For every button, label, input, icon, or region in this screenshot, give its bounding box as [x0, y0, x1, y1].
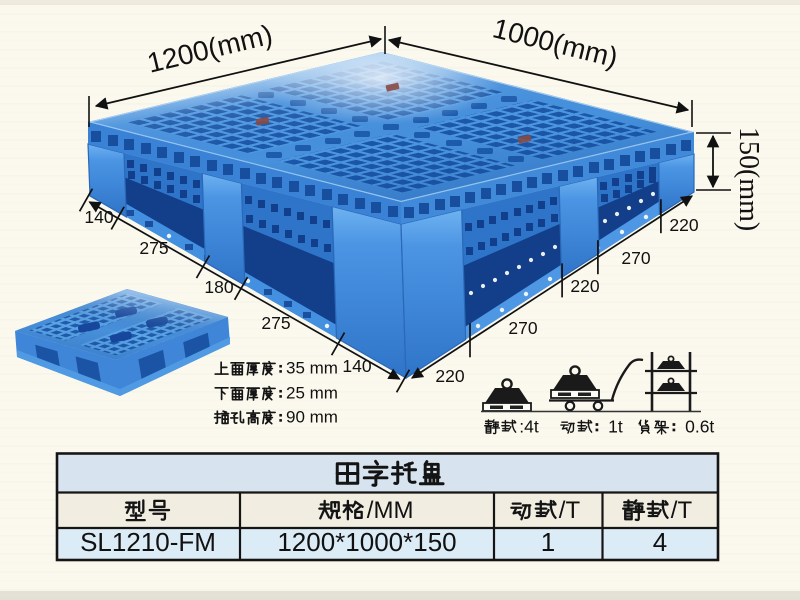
- svg-text:25 mm: 25 mm: [286, 384, 338, 403]
- svg-text:140: 140: [84, 207, 113, 227]
- svg-text:SL1210-FM: SL1210-FM: [80, 527, 216, 557]
- svg-text:1t: 1t: [608, 417, 623, 437]
- svg-text:140: 140: [342, 356, 371, 376]
- svg-text:275: 275: [139, 238, 168, 258]
- svg-text:275: 275: [261, 313, 290, 333]
- svg-text:270: 270: [508, 318, 537, 338]
- svg-text::4t: :4t: [519, 417, 539, 437]
- svg-text:/T: /T: [559, 497, 581, 524]
- svg-text:90 mm: 90 mm: [286, 408, 338, 427]
- svg-text:180: 180: [204, 277, 233, 297]
- svg-text:1: 1: [541, 527, 555, 557]
- svg-text:220: 220: [669, 215, 698, 235]
- svg-text:270: 270: [621, 248, 650, 268]
- svg-text:220: 220: [570, 276, 599, 296]
- svg-text:150(mm): 150(mm): [733, 127, 764, 231]
- svg-text:1200*1000*150: 1200*1000*150: [277, 527, 456, 557]
- svg-text:220: 220: [435, 366, 464, 386]
- svg-text:35 mm: 35 mm: [286, 359, 338, 378]
- svg-text:0.6t: 0.6t: [685, 417, 714, 437]
- svg-text:/T: /T: [671, 497, 693, 524]
- svg-text:4: 4: [653, 527, 667, 557]
- svg-text:/MM: /MM: [367, 497, 414, 524]
